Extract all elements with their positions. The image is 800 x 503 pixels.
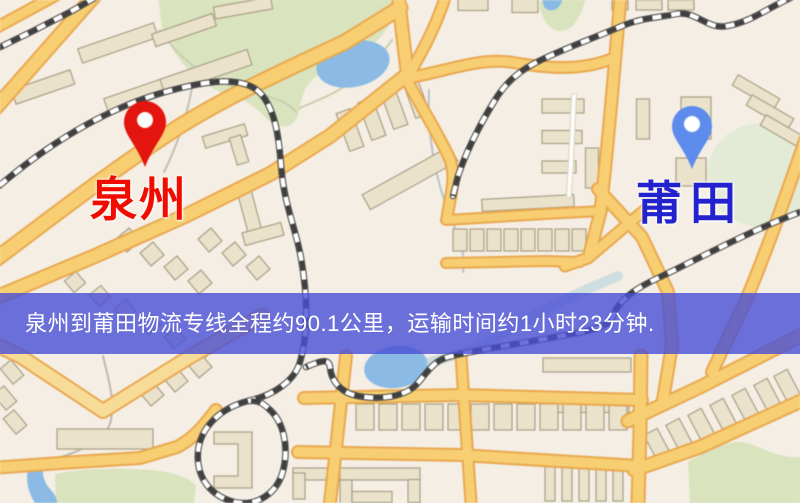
map-screenshot: 泉州 莆田 泉州到莆田物流专线全程约90.1公里，运输时间约1小时23分钟.: [0, 0, 800, 503]
origin-label: 泉州: [90, 176, 188, 223]
route-info-banner: 泉州到莆田物流专线全程约90.1公里，运输时间约1小时23分钟.: [0, 293, 800, 354]
map-canvas[interactable]: [0, 0, 800, 503]
destination-label: 莆田: [636, 180, 744, 226]
route-info-text: 泉州到莆田物流专线全程约90.1公里，运输时间约1小时23分钟.: [25, 306, 655, 338]
